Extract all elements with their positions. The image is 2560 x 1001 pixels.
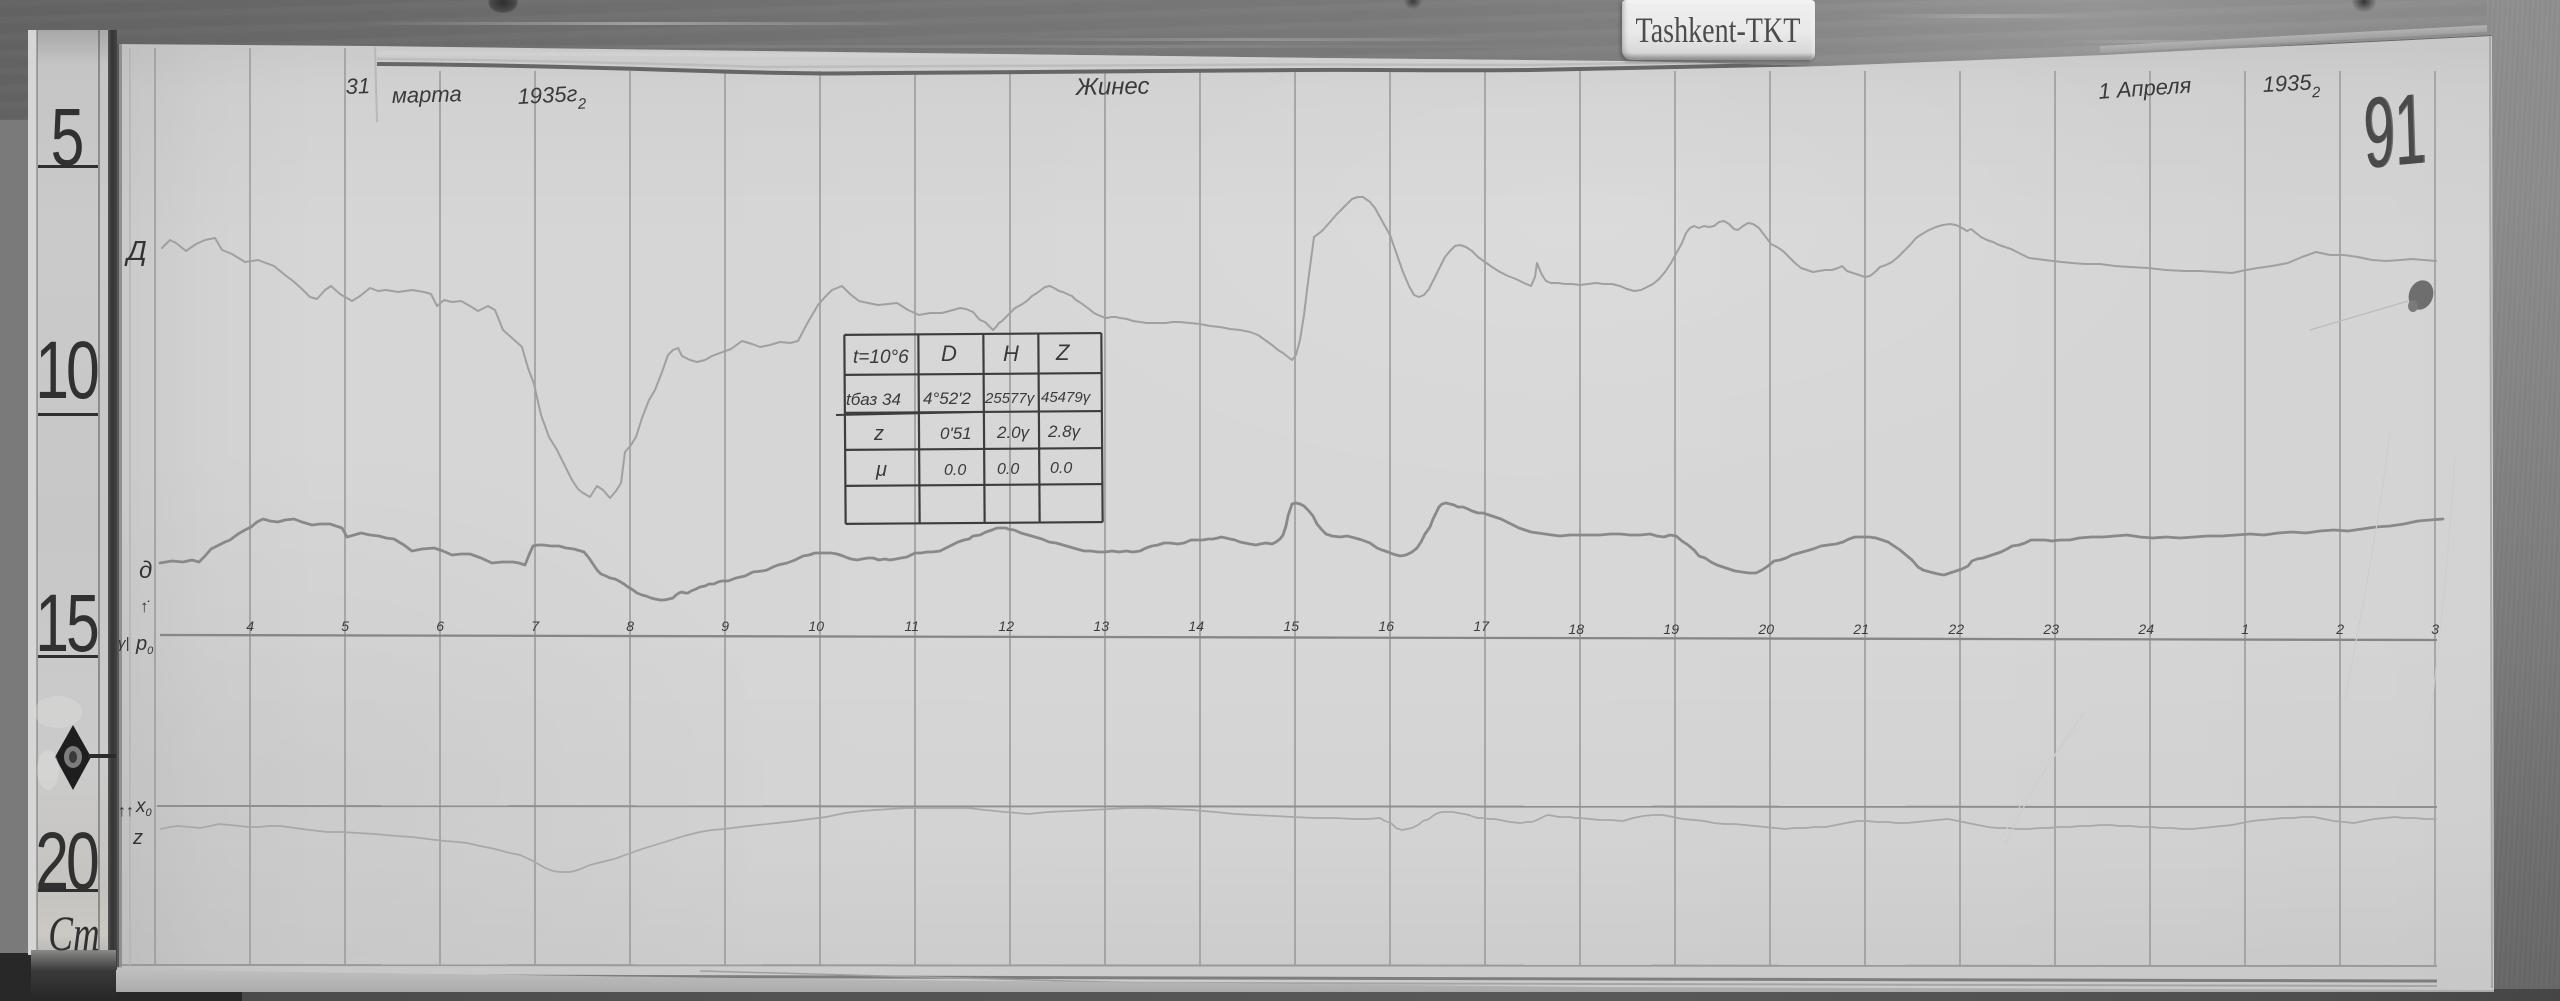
svg-text:19352: 19352 bbox=[2262, 69, 2322, 104]
svg-text:15: 15 bbox=[1283, 618, 1299, 634]
svg-text:D: D bbox=[941, 341, 957, 366]
svg-text:z: z bbox=[132, 827, 143, 849]
svg-text:tбаз 34: tбаз 34 bbox=[846, 390, 901, 409]
svg-text:1 Апреля: 1 Апреля bbox=[2098, 72, 2193, 103]
svg-text:24: 24 bbox=[2137, 621, 2154, 637]
svg-text:μ: μ bbox=[875, 459, 887, 481]
svg-text:2.8γ: 2.8γ bbox=[1047, 422, 1082, 441]
svg-text:Жинес: Жинес bbox=[1075, 73, 1150, 101]
svg-text:14: 14 bbox=[1188, 618, 1204, 634]
svg-text:31: 31 bbox=[345, 73, 370, 99]
svg-text:25577γ: 25577γ bbox=[984, 390, 1036, 407]
svg-text:13: 13 bbox=[1093, 618, 1109, 634]
svg-text:8: 8 bbox=[626, 618, 634, 634]
svg-text:11: 11 bbox=[904, 618, 919, 634]
svg-text:23: 23 bbox=[2042, 621, 2059, 637]
svg-text:t=10°6: t=10°6 bbox=[853, 347, 909, 368]
svg-text:x0: x0 bbox=[135, 796, 153, 819]
svg-text:5: 5 bbox=[341, 618, 349, 634]
svg-text:p0: p0 bbox=[135, 633, 154, 657]
svg-text:22: 22 bbox=[1947, 621, 1964, 637]
svg-text:1: 1 bbox=[2241, 621, 2249, 637]
svg-text:19: 19 bbox=[1663, 621, 1679, 637]
svg-text:Д: Д bbox=[124, 235, 147, 266]
svg-text:0'51: 0'51 bbox=[940, 424, 972, 443]
svg-text:4: 4 bbox=[246, 618, 254, 634]
svg-text:2.0γ: 2.0γ bbox=[996, 423, 1031, 442]
svg-text:Tashkent-TKT: Tashkent-TKT bbox=[1636, 10, 1801, 50]
svg-text:6: 6 bbox=[436, 618, 444, 634]
svg-text:H: H bbox=[1003, 341, 1019, 366]
svg-text:2: 2 bbox=[2335, 621, 2344, 637]
svg-text:д: д bbox=[139, 557, 152, 584]
svg-text:1935г2: 1935г2 bbox=[517, 80, 587, 116]
svg-text:12: 12 bbox=[998, 618, 1014, 634]
svg-text:Z: Z bbox=[1055, 340, 1071, 365]
svg-text:21: 21 bbox=[1852, 621, 1869, 637]
svg-text:45479γ: 45479γ bbox=[1041, 389, 1092, 406]
svg-text:марта: марта bbox=[391, 81, 462, 108]
svg-text:10: 10 bbox=[808, 618, 824, 634]
svg-text:16: 16 bbox=[1378, 618, 1394, 634]
svg-text:z: z bbox=[873, 423, 884, 445]
svg-text:0.0: 0.0 bbox=[1050, 460, 1072, 477]
svg-text:0.0: 0.0 bbox=[944, 462, 966, 479]
svg-text:0.0: 0.0 bbox=[997, 461, 1019, 478]
svg-text:↑↑: ↑↑ bbox=[118, 803, 134, 820]
svg-text:91: 91 bbox=[2362, 73, 2427, 190]
svg-text:7: 7 bbox=[531, 618, 540, 634]
svg-text:9: 9 bbox=[721, 618, 729, 634]
svg-text:↑̇: ↑̇ bbox=[140, 597, 150, 616]
svg-text:18: 18 bbox=[1568, 621, 1584, 637]
svg-text:20: 20 bbox=[1757, 621, 1774, 637]
svg-text:17: 17 bbox=[1473, 618, 1490, 634]
svg-text:3: 3 bbox=[2431, 621, 2439, 637]
svg-text:4°52'2: 4°52'2 bbox=[923, 389, 971, 408]
